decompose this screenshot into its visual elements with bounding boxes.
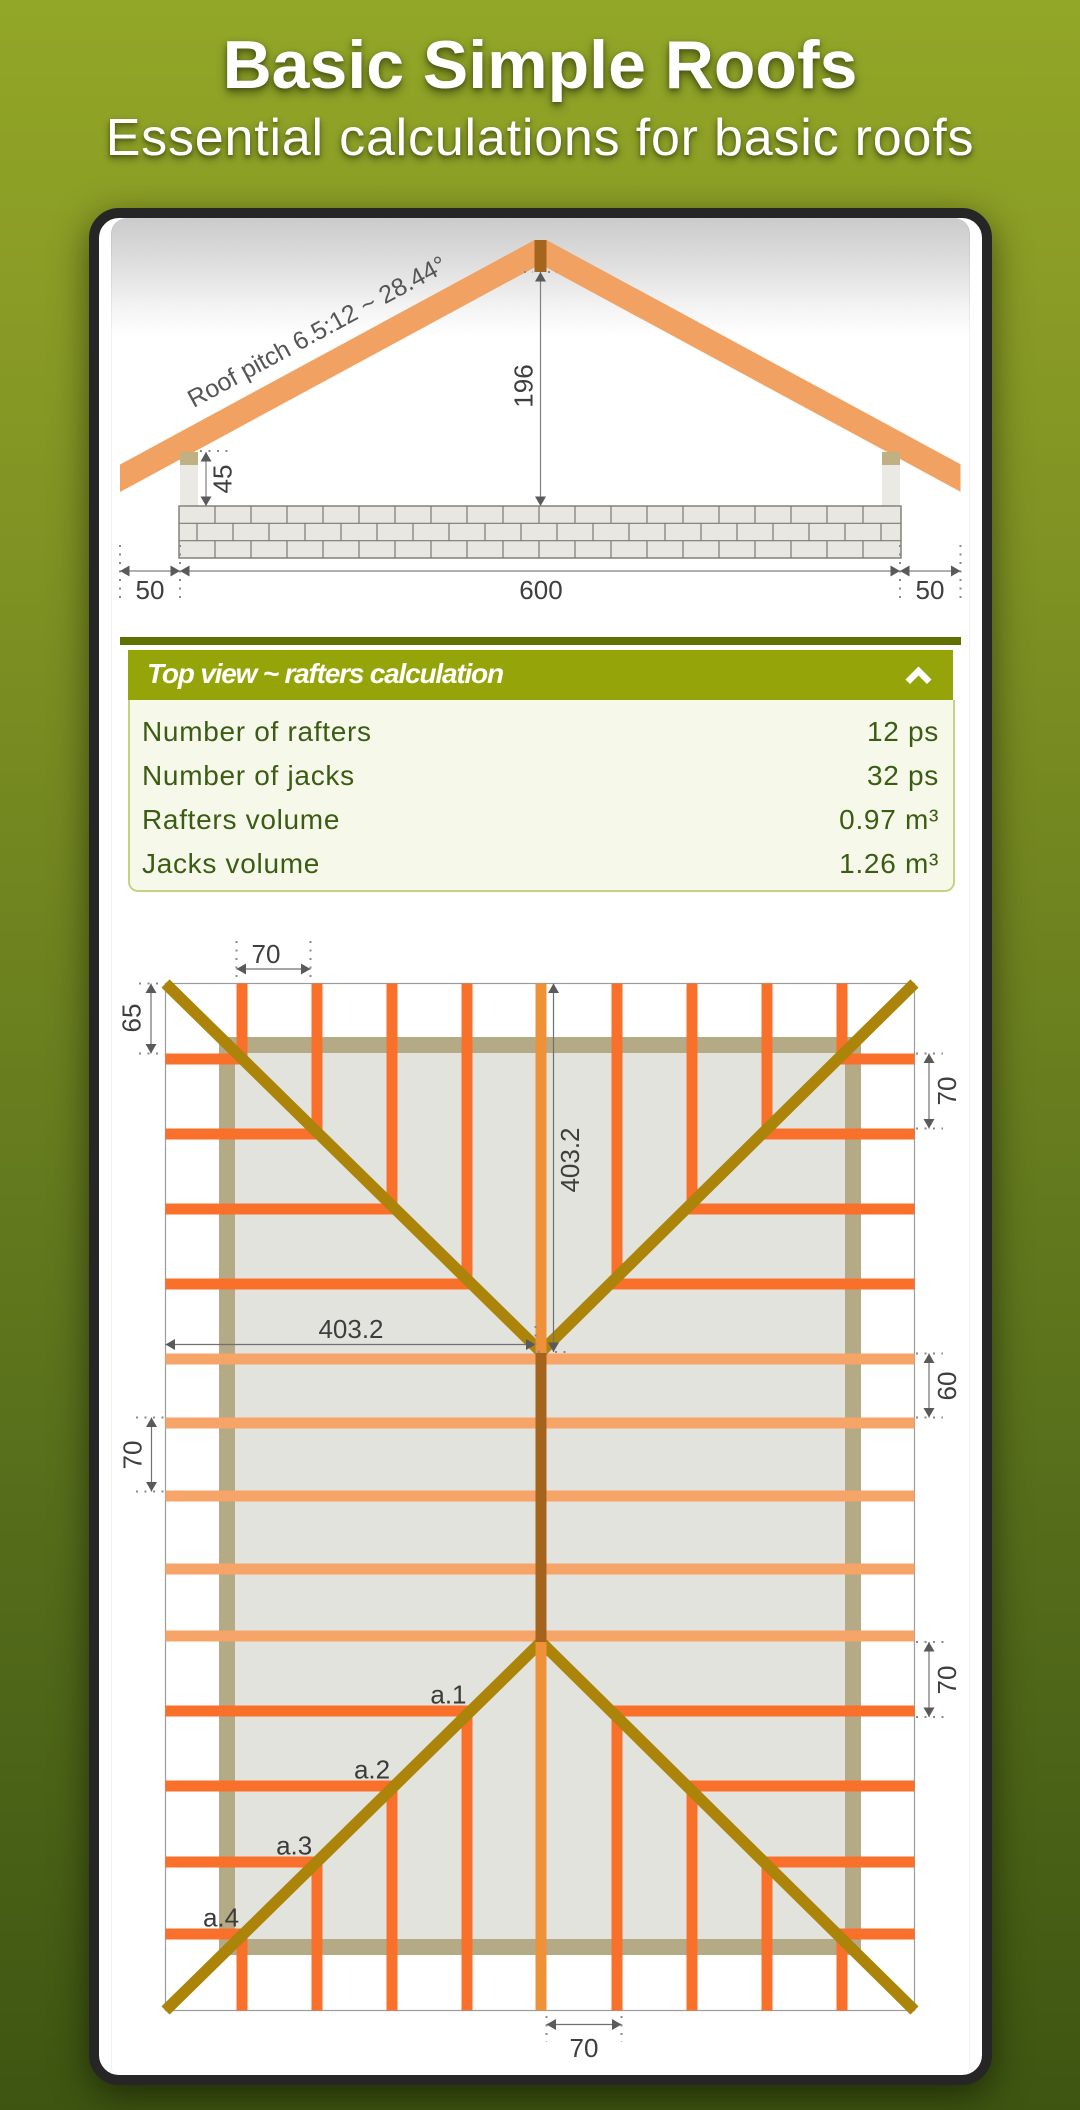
svg-text:65: 65 [117,1004,147,1033]
svg-text:70: 70 [252,939,281,969]
svg-text:403.2: 403.2 [555,1127,585,1192]
svg-text:a.4: a.4 [203,1903,239,1933]
svg-text:a.3: a.3 [276,1831,312,1861]
svg-text:196: 196 [509,364,539,407]
svg-text:600: 600 [519,575,562,605]
svg-text:70: 70 [118,1441,148,1470]
svg-text:403.2: 403.2 [318,1314,383,1344]
svg-text:70: 70 [570,2033,599,2063]
svg-text:70: 70 [932,1077,962,1106]
svg-text:50: 50 [136,575,165,605]
svg-text:70: 70 [932,1666,962,1695]
svg-text:a.2: a.2 [354,1754,390,1784]
svg-text:50: 50 [916,575,945,605]
svg-text:60: 60 [932,1372,962,1401]
svg-text:a.1: a.1 [430,1679,466,1709]
svg-text:45: 45 [208,465,238,494]
